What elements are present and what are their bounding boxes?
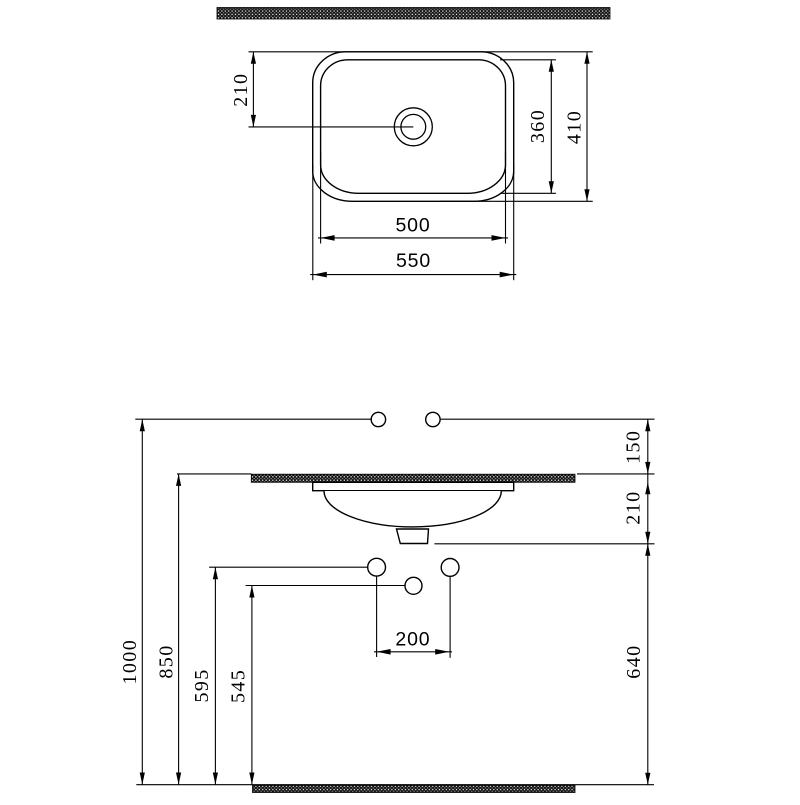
svg-text:200: 200 [395, 629, 430, 651]
svg-text:500: 500 [396, 215, 431, 237]
svg-text:150: 150 [623, 430, 645, 464]
svg-text:410: 410 [564, 110, 586, 144]
svg-text:1000: 1000 [119, 639, 141, 685]
svg-text:210: 210 [623, 490, 645, 524]
svg-text:550: 550 [396, 250, 431, 272]
svg-text:210: 210 [230, 73, 252, 107]
svg-text:850: 850 [155, 644, 177, 678]
svg-text:545: 545 [228, 669, 250, 703]
svg-text:360: 360 [527, 109, 549, 143]
svg-text:595: 595 [191, 668, 213, 702]
svg-text:640: 640 [623, 644, 645, 678]
